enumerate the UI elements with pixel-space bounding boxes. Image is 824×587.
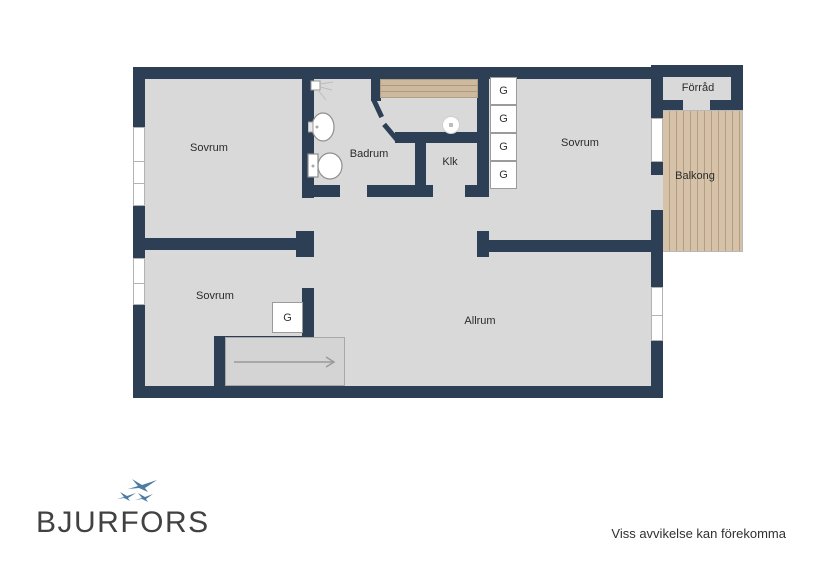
toilet-icon bbox=[306, 150, 344, 182]
room-label-sovrum-tl: Sovrum bbox=[190, 142, 228, 154]
bird-icon bbox=[117, 492, 136, 501]
room-label-sovrum-bl: Sovrum bbox=[196, 290, 234, 302]
room-label-balkong: Balkong bbox=[675, 170, 715, 182]
wardrobe-box: G bbox=[490, 133, 517, 161]
wardrobe-box: G bbox=[490, 161, 517, 189]
bird-icon bbox=[128, 479, 157, 492]
wardrobe-label: G bbox=[499, 85, 508, 97]
room-label-klk: Klk bbox=[442, 156, 457, 168]
wall-outer-top bbox=[133, 67, 663, 79]
bjurfors-logo-text: BJURFORS bbox=[36, 506, 210, 540]
room-label-allrum: Allrum bbox=[464, 315, 495, 327]
apartment-floor bbox=[133, 67, 663, 398]
wall-klk-west bbox=[415, 143, 426, 197]
shower-icon bbox=[310, 80, 336, 104]
stairs-arrow-icon bbox=[226, 338, 344, 385]
balcony-door-opening bbox=[651, 175, 663, 210]
wardrobe-label: G bbox=[499, 113, 508, 125]
room-label-badrum: Badrum bbox=[350, 148, 389, 160]
room-label-sovrum-tr: Sovrum bbox=[561, 137, 599, 149]
wall-outer-bottom bbox=[133, 386, 663, 398]
wall-bathroom-south-1 bbox=[302, 185, 340, 197]
window-left-2 bbox=[133, 258, 145, 305]
wall-outer-right bbox=[651, 67, 663, 398]
window-right-1 bbox=[651, 118, 663, 162]
wall-outer-left bbox=[133, 67, 145, 398]
wardrobe-label: G bbox=[283, 312, 292, 324]
wall-wardrobe-column bbox=[477, 79, 489, 197]
wall-allrum-top-right bbox=[477, 240, 663, 252]
bird-flock-icon bbox=[114, 477, 164, 509]
wall-bedrooms-divider-cap bbox=[296, 231, 314, 257]
wall-bedrooms-divider bbox=[133, 238, 302, 250]
hall-wood-bench bbox=[380, 79, 478, 98]
wardrobe-label: G bbox=[499, 141, 508, 153]
window-left-1 bbox=[133, 127, 145, 206]
wardrobe-box: G bbox=[272, 302, 303, 333]
storage-door-opening bbox=[683, 100, 710, 110]
sink-icon bbox=[308, 110, 338, 144]
stairs bbox=[225, 337, 345, 386]
wardrobe-box: G bbox=[490, 105, 517, 133]
wall-klk-top bbox=[395, 132, 483, 143]
bird-icon bbox=[135, 493, 153, 502]
disclaimer-text: Viss avvikelse kan förekomma bbox=[611, 526, 786, 541]
room-label-forrad: Förråd bbox=[682, 82, 714, 94]
spotlight-icon bbox=[441, 115, 461, 135]
window-right-2 bbox=[651, 287, 663, 341]
wardrobe-label: G bbox=[499, 169, 508, 181]
wall-allrum-top-right-cap bbox=[477, 231, 489, 257]
wardrobe-box: G bbox=[490, 77, 517, 105]
